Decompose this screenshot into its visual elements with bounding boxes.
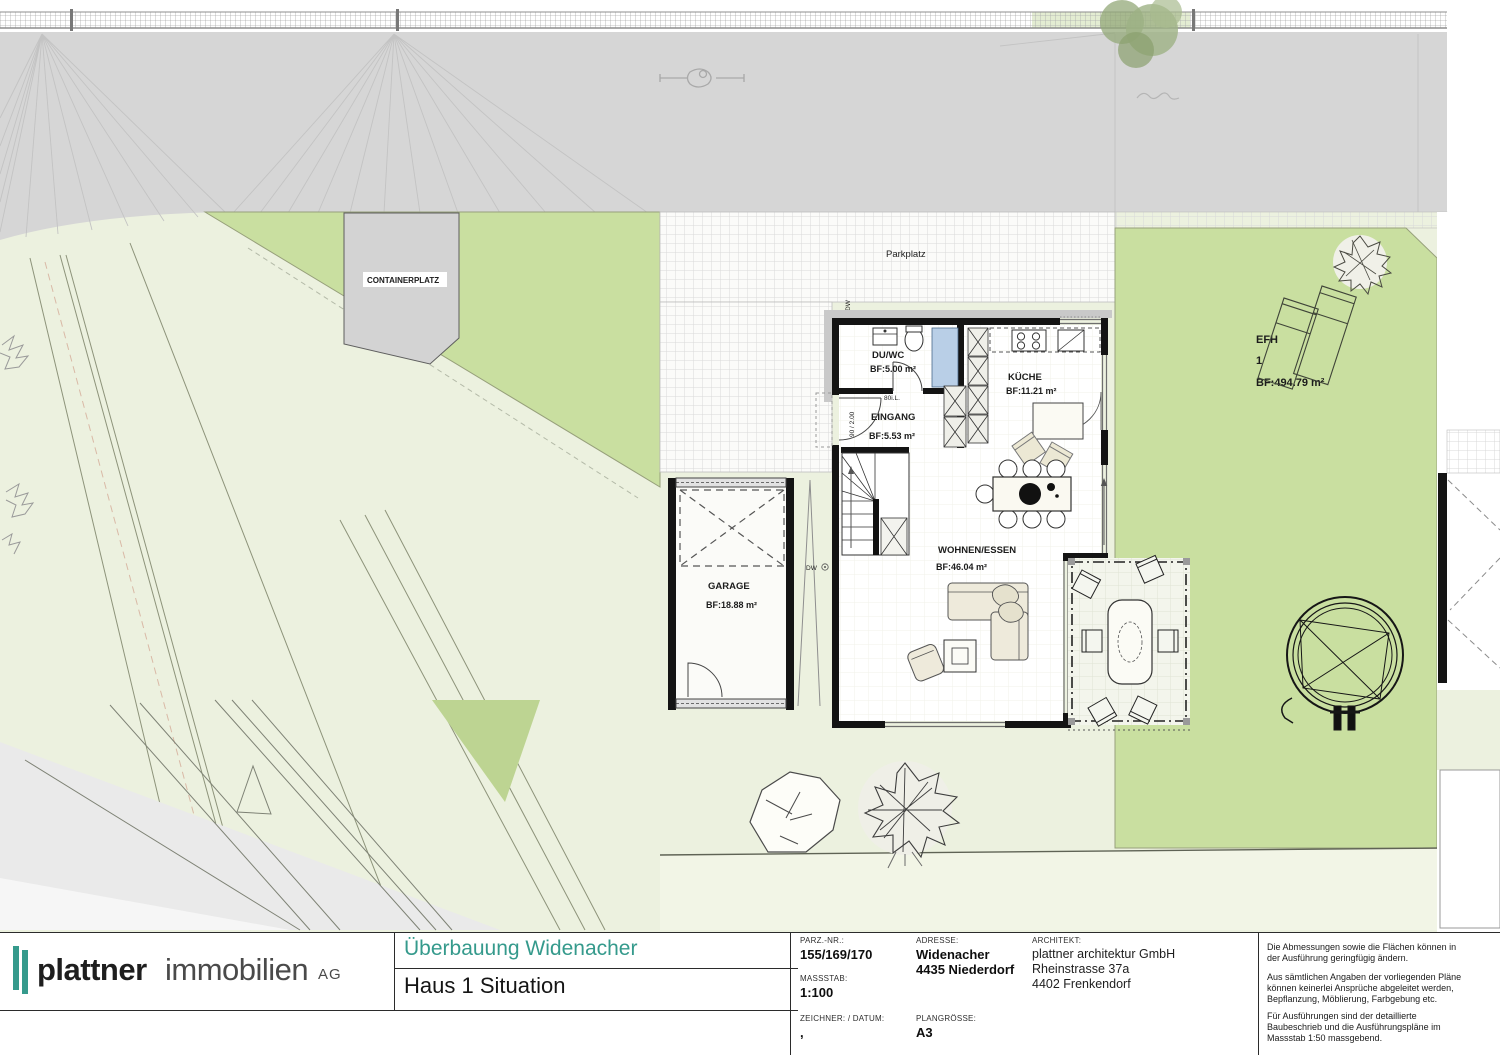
adresse-label: ADRESSE:	[916, 936, 958, 945]
logo-bar-icon	[22, 950, 28, 994]
parkplatz-label: Parkplatz	[886, 249, 926, 260]
parcel-area: BF:494.79 m²	[1256, 377, 1325, 389]
terrace	[1068, 555, 1192, 730]
house-floorplan: 90 / 2.00 80i.L.	[816, 310, 1112, 728]
project-title: Überbauung Widenacher	[404, 937, 637, 961]
adresse-value-2: 4435 Niederdorf	[916, 962, 1014, 977]
kueche-name: KÜCHE	[1008, 372, 1042, 383]
plan-sheet: CONTAINERPLATZ Parkplatz GARAGE	[0, 0, 1500, 1060]
architekt-value-2: Rheinstrasse 37a	[1032, 962, 1129, 977]
logo-word-immobilien: immobilien	[165, 952, 308, 988]
road-area	[0, 0, 1447, 240]
staircase	[842, 453, 909, 555]
zeichner-value: ,	[800, 1025, 804, 1040]
plangroesse-label: PLANGRÖSSE:	[916, 1014, 976, 1023]
site-plan-drawing: CONTAINERPLATZ Parkplatz GARAGE	[0, 0, 1500, 932]
vertical-divider-2	[790, 932, 791, 1055]
containerplatz-label: CONTAINERPLATZ	[367, 276, 439, 285]
vertical-divider-3	[1258, 932, 1259, 1055]
parcel-efh: EFH	[1256, 334, 1278, 346]
zeichner-label: ZEICHNER: / DATUM:	[800, 1014, 884, 1023]
architekt-label: ARCHITEKT:	[1032, 936, 1081, 945]
garage-area-value: BF:18.88 m²	[706, 600, 757, 610]
architekt-value-3: 4402 Frenkendorf	[1032, 977, 1131, 992]
door-width-label: 80i.L.	[884, 395, 900, 402]
wohnen-name: WOHNEN/ESSEN	[938, 545, 1016, 556]
stove	[1012, 330, 1046, 351]
note-dimensions: Die Abmessungen sowie die Flächen können…	[1267, 942, 1465, 964]
titleblock-top-rule	[0, 932, 1500, 933]
lower-meadow	[660, 848, 1445, 930]
logo-bar-icon	[13, 946, 19, 990]
adresse-value-1: Widenacher	[916, 947, 990, 962]
parcel-number: 1	[1256, 355, 1262, 367]
duwc-area: BF:5.00 m²	[870, 364, 916, 374]
dw-top-label: DW	[845, 299, 852, 311]
boundary-wall-strip	[0, 9, 1447, 31]
kueche-area: BF:11.21 m²	[1006, 386, 1057, 396]
duwc-name: DU/WC	[872, 350, 904, 361]
massstab-label: MASSSTAB:	[800, 974, 847, 983]
garage: GARAGE BF:18.88 m²	[668, 478, 794, 710]
logo-word-ag: AG	[318, 966, 342, 983]
parz-label: PARZ.-NR.:	[800, 936, 844, 945]
massstab-value: 1:100	[800, 985, 833, 1000]
shower	[932, 328, 958, 387]
logo-word-plattner: plattner	[37, 952, 147, 988]
architekt-value-1: plattner architektur GmbH	[1032, 947, 1175, 962]
neighbour-building	[1437, 212, 1500, 932]
garage-name: GARAGE	[708, 581, 750, 592]
titleblock-bottom-rule	[0, 1010, 798, 1011]
sheet-title: Haus 1 Situation	[404, 973, 565, 999]
coffee-table	[944, 640, 976, 672]
vertical-divider-1	[394, 932, 395, 1010]
door-size-label: 90 / 2.00	[849, 411, 856, 437]
containerplatz: CONTAINERPLATZ	[344, 213, 459, 364]
eingang-area: BF:5.53 m²	[869, 431, 915, 441]
parz-value: 155/169/170	[800, 947, 872, 962]
plangroesse-value: A3	[916, 1025, 933, 1040]
dw-side-label: DW	[806, 565, 818, 572]
note-execution: Für Ausführungen sind der detaillierte B…	[1267, 1011, 1465, 1043]
title-divider-rule	[394, 968, 798, 969]
eingang-name: EINGANG	[871, 412, 915, 423]
terrace-table	[1108, 600, 1152, 684]
wohnen-area: BF:46.04 m²	[936, 562, 987, 572]
note-claims: Aus sämtlichen Angaben der vorliegenden …	[1267, 972, 1465, 1004]
